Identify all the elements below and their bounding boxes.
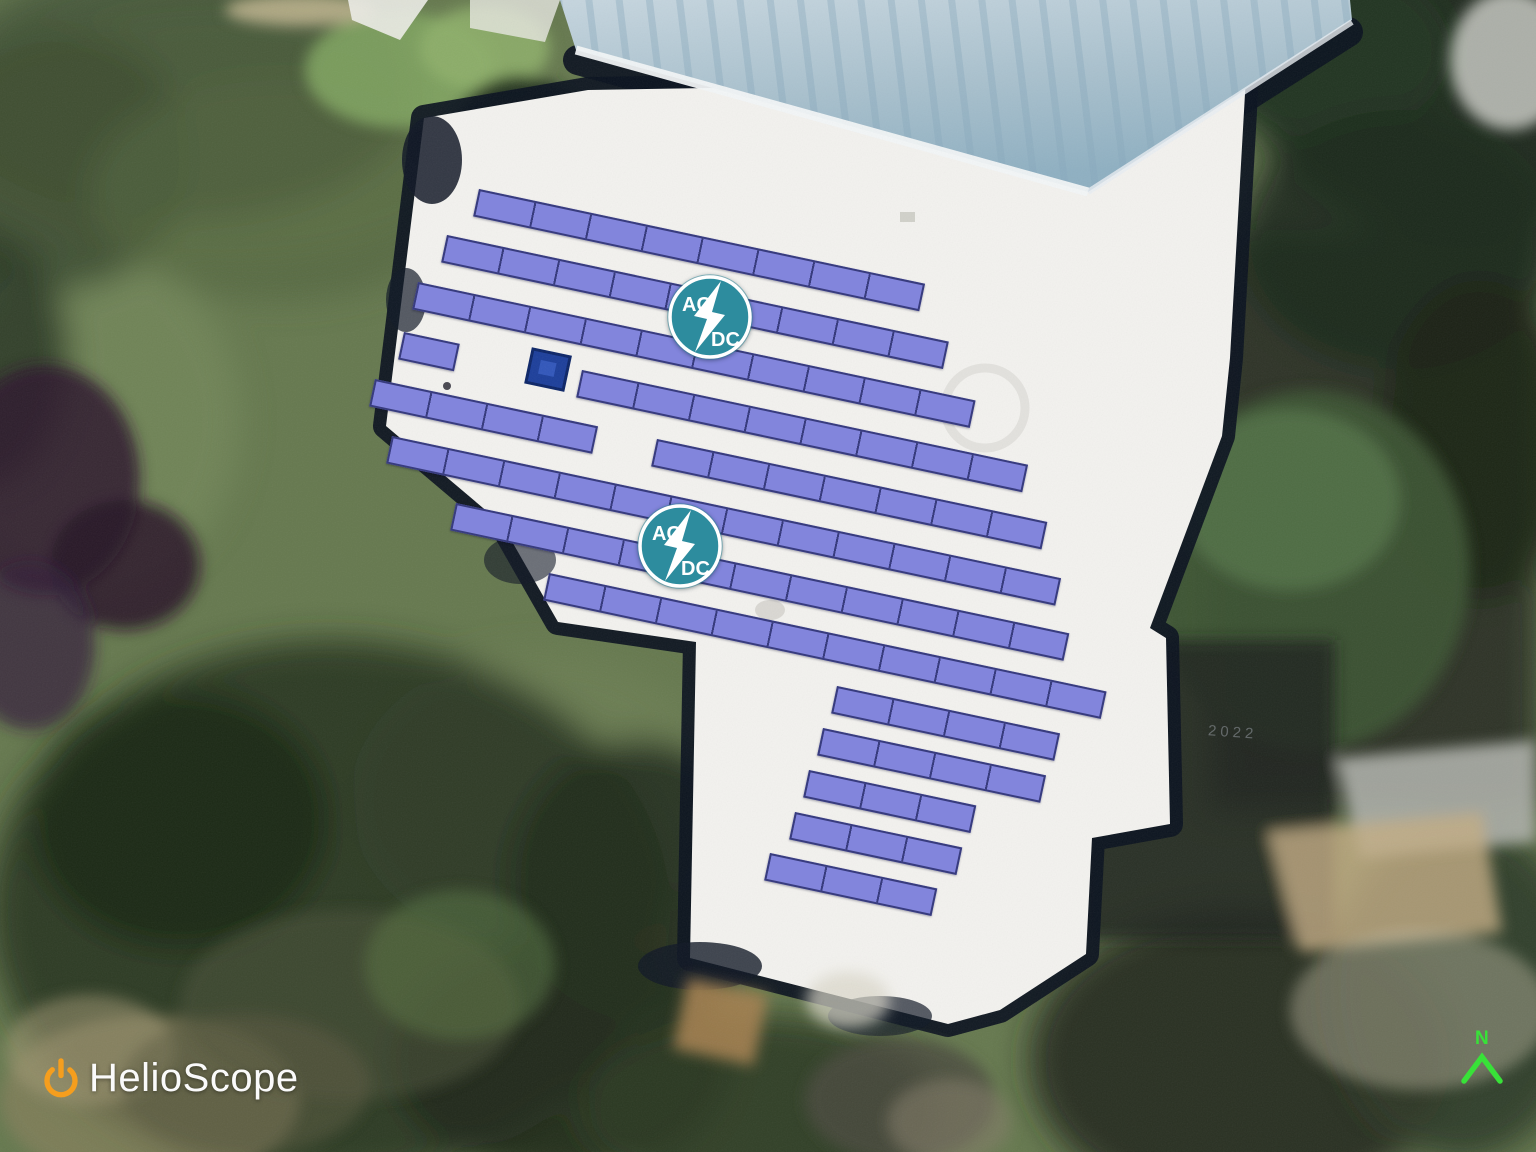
helioscope-logo: HelioScope bbox=[40, 1056, 299, 1101]
solar-array-layer bbox=[0, 0, 1536, 1152]
power-icon bbox=[40, 1058, 82, 1100]
logo-text: HelioScope bbox=[89, 1056, 299, 1101]
imagery-watermark: 2022 bbox=[1207, 722, 1257, 742]
north-label: N bbox=[1475, 1028, 1489, 1049]
solar-panel-row[interactable] bbox=[398, 332, 460, 371]
dc-label: DC bbox=[681, 558, 710, 580]
north-arrow-icon bbox=[1464, 1057, 1500, 1081]
ac-label: AC bbox=[682, 294, 711, 316]
ac-dc-inverter-icon-2[interactable]: AC DC bbox=[637, 503, 723, 589]
dc-label: DC bbox=[711, 329, 740, 351]
north-indicator: N bbox=[1456, 1024, 1510, 1088]
ac-label: AC bbox=[652, 523, 681, 545]
ac-dc-inverter-icon-1[interactable]: AC DC bbox=[667, 274, 753, 360]
satellite-map[interactable]: AC DC AC DC HelioScope N 2022 bbox=[0, 0, 1536, 1152]
